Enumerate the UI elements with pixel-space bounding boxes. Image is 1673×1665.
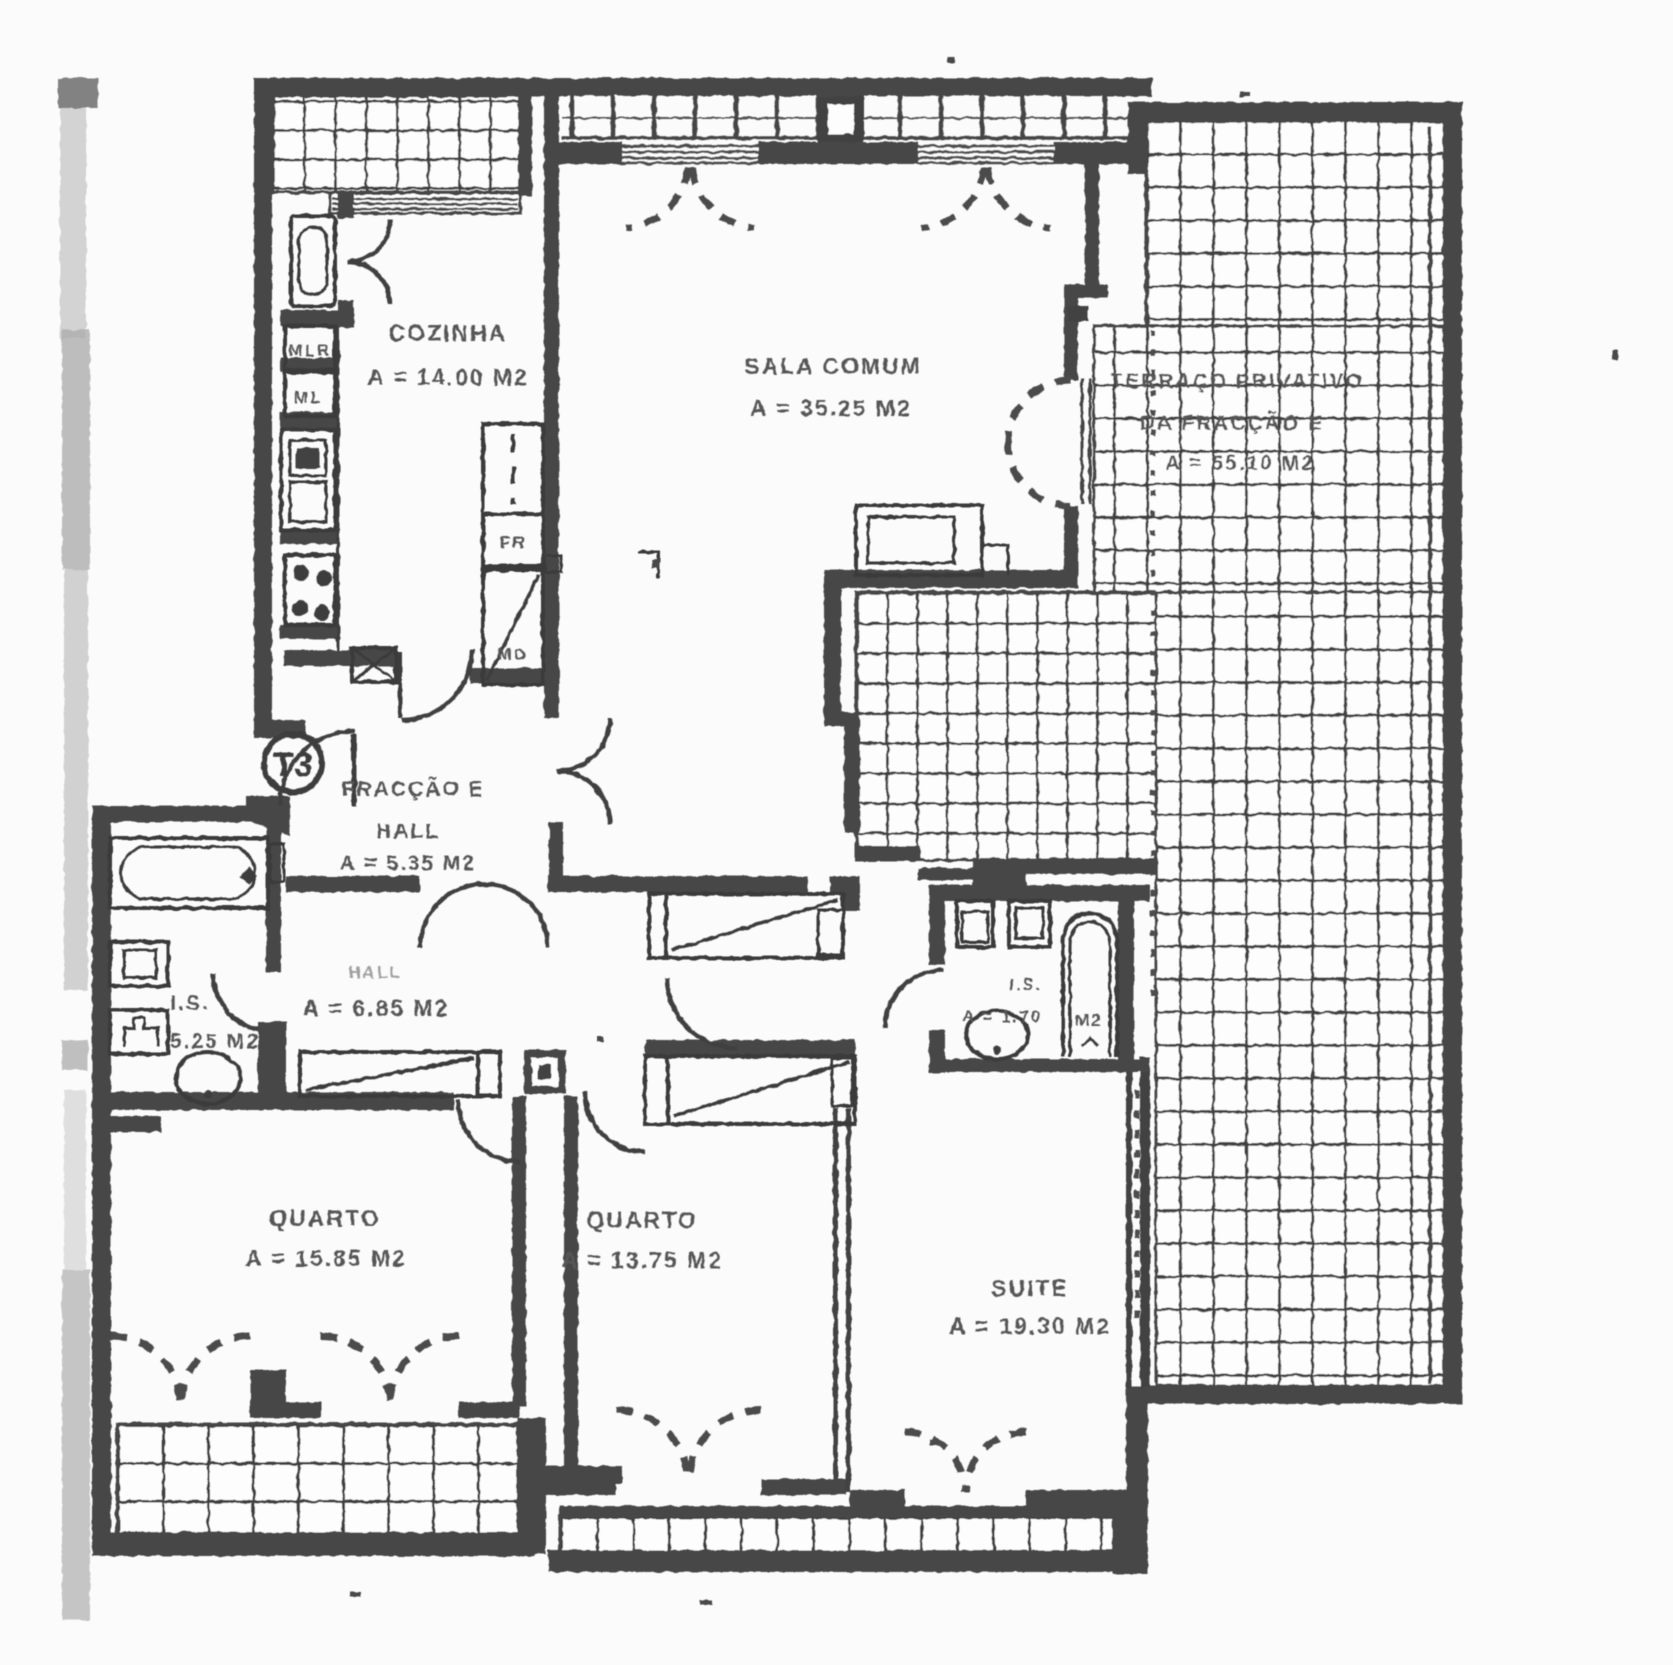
svg-text:A = 15.85 M2: A = 15.85 M2 (245, 1245, 407, 1271)
svg-text:A = 1.70: A = 1.70 (962, 1007, 1042, 1026)
svg-text:SALA COMUM: SALA COMUM (744, 353, 922, 379)
svg-text:FR: FR (500, 533, 527, 552)
svg-text:I.S.: I.S. (170, 992, 210, 1015)
svg-text:COZINHA: COZINHA (389, 320, 508, 346)
svg-text:SUITE: SUITE (991, 1275, 1069, 1301)
svg-text:I.S.: I.S. (1009, 975, 1043, 994)
svg-text:HALL: HALL (376, 820, 440, 843)
svg-text:TERRAÇO PRIVATIVO: TERRAÇO PRIVATIVO (1110, 370, 1364, 393)
svg-text:DA FRACÇÃO E: DA FRACÇÃO E (1140, 412, 1324, 435)
svg-text:HALL: HALL (348, 963, 401, 982)
svg-text:A = 55.10 M2: A = 55.10 M2 (1165, 452, 1315, 475)
svg-text:A = 14.00 M2: A = 14.00 M2 (367, 364, 529, 390)
svg-text:M2: M2 (1075, 1011, 1103, 1030)
svg-text:QUARTO: QUARTO (586, 1207, 697, 1233)
svg-text:5.25 M2: 5.25 M2 (170, 1030, 260, 1053)
svg-text:MO: MO (497, 645, 528, 664)
svg-text:T3: T3 (273, 746, 313, 784)
svg-text:A = 35.25 M2: A = 35.25 M2 (750, 395, 912, 421)
svg-text:QUARTO: QUARTO (269, 1205, 380, 1231)
svg-text:A = 6.85 M2: A = 6.85 M2 (302, 995, 449, 1021)
svg-text:ML: ML (294, 388, 323, 407)
svg-text:A = 5.35 M2: A = 5.35 M2 (340, 852, 476, 875)
svg-text:A = 19.30 M2: A = 19.30 M2 (949, 1313, 1111, 1339)
svg-text:MLR: MLR (289, 341, 332, 360)
svg-text:A = 13.75 M2: A = 13.75 M2 (561, 1247, 723, 1273)
svg-text:FRACÇÃO E: FRACÇÃO E (342, 778, 485, 801)
